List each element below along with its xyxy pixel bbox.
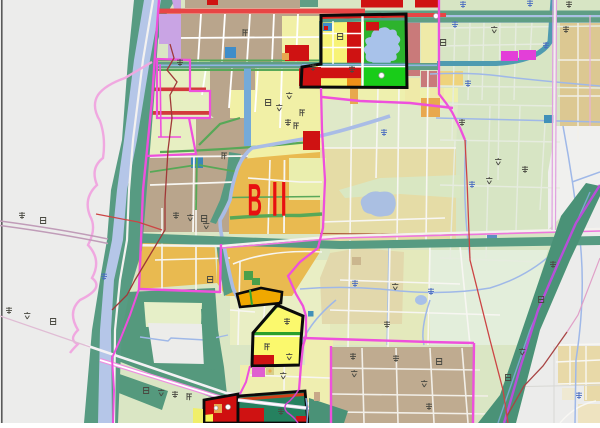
svg-text:B: B: [248, 175, 263, 226]
